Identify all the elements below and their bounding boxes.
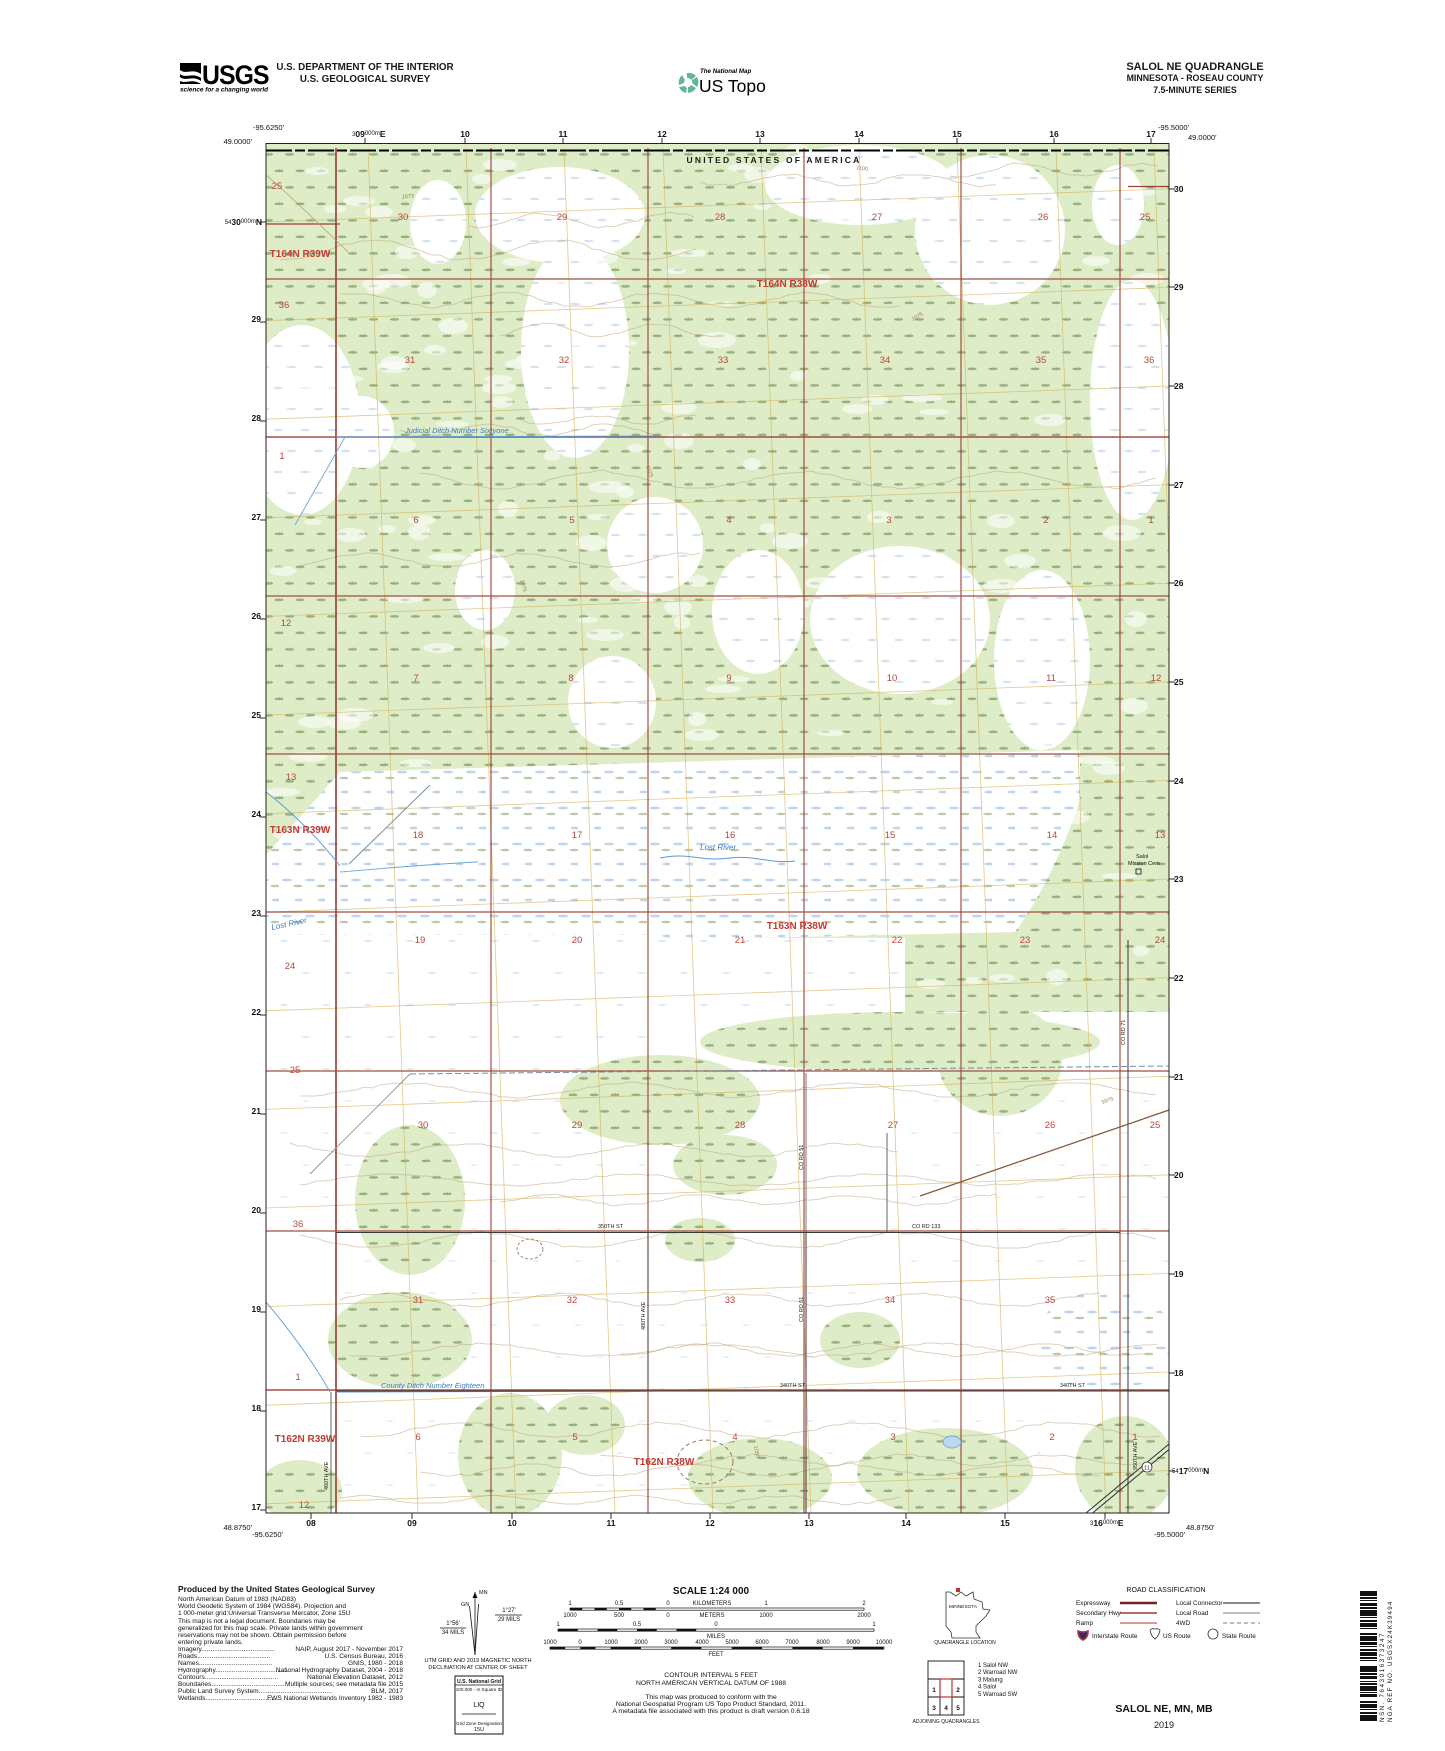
svg-text:350TH ST: 350TH ST	[598, 1224, 624, 1230]
svg-text:10: 10	[887, 673, 898, 684]
svg-text:NSN. 7643016373247: NSN. 7643016373247	[1379, 1632, 1386, 1722]
svg-text:28: 28	[252, 413, 262, 423]
svg-text:3 Malung: 3 Malung	[978, 1677, 1003, 1683]
svg-text:4 Salol: 4 Salol	[978, 1685, 996, 1691]
svg-text:48.8750': 48.8750'	[1186, 1523, 1215, 1532]
svg-text:U.S. Census Bureau, 2016: U.S. Census Bureau, 2016	[325, 1653, 404, 1660]
svg-text:1: 1	[279, 451, 284, 462]
svg-text:1000: 1000	[563, 1613, 577, 1619]
svg-text:The National Map: The National Map	[700, 68, 751, 75]
svg-text:FEET: FEET	[708, 1652, 724, 1658]
svg-text:3: 3	[886, 515, 891, 526]
svg-text:T162N R39W: T162N R39W	[275, 1434, 336, 1445]
svg-text:US Topo: US Topo	[699, 76, 766, 96]
svg-text:17: 17	[1146, 129, 1156, 139]
svg-text:Boundaries....................: Boundaries..............................…	[178, 1681, 285, 1688]
svg-text:FWS National Wetlands Inventor: FWS National Wetlands Inventory 1982 - 1…	[267, 1695, 403, 1702]
svg-text:18: 18	[413, 830, 424, 841]
svg-text:17: 17	[252, 1502, 262, 1512]
svg-text:34: 34	[880, 355, 891, 366]
svg-text:13: 13	[804, 1518, 814, 1528]
svg-text:36: 36	[279, 300, 290, 311]
svg-text:A metadata file associated wit: A metadata file associated with this pro…	[612, 1708, 809, 1715]
svg-text:-95.6250': -95.6250'	[252, 1530, 284, 1539]
svg-text:2000: 2000	[634, 1640, 648, 1646]
svg-text:2: 2	[956, 1687, 960, 1694]
svg-text:7: 7	[413, 673, 418, 684]
svg-text:1000: 1000	[759, 1613, 773, 1619]
svg-text:35: 35	[1036, 355, 1047, 366]
svg-text:11: 11	[559, 129, 568, 139]
svg-text:35: 35	[1045, 1295, 1056, 1306]
svg-text:1: 1	[1148, 515, 1153, 526]
svg-text:11: 11	[1046, 673, 1056, 684]
svg-text:5 Warroad SW: 5 Warroad SW	[978, 1692, 1017, 1698]
svg-text:1000: 1000	[604, 1640, 618, 1646]
svg-text:15: 15	[1000, 1518, 1010, 1528]
svg-text:12: 12	[705, 1518, 715, 1528]
svg-text:2 Warroad NW: 2 Warroad NW	[978, 1670, 1018, 1676]
svg-text:19: 19	[1174, 1269, 1184, 1279]
svg-text:4: 4	[944, 1705, 948, 1712]
svg-text:500: 500	[614, 1613, 625, 1619]
svg-text:26: 26	[1174, 578, 1184, 588]
svg-text:LIQ: LIQ	[473, 1702, 485, 1709]
svg-text:Contours......................: Contours................................…	[178, 1674, 278, 1681]
svg-text:29: 29	[252, 314, 262, 324]
svg-text:UNITED STATES OF AMERICA: UNITED STATES OF AMERICA	[687, 155, 862, 165]
svg-text:14: 14	[1047, 830, 1058, 841]
svg-text:reservations may not be shown.: reservations may not be shown. Obtain pe…	[178, 1632, 347, 1639]
svg-text:GNIS, 1980 - 2018: GNIS, 1980 - 2018	[348, 1660, 403, 1667]
svg-text:25: 25	[252, 710, 262, 720]
svg-text:340TH ST: 340TH ST	[780, 1383, 806, 1389]
svg-text:30: 30	[1174, 184, 1184, 194]
svg-text:This map is not a legal docume: This map is not a legal document. Bounda…	[178, 1618, 336, 1625]
svg-text:18: 18	[252, 1403, 262, 1413]
svg-text:24: 24	[252, 809, 262, 819]
svg-text:12: 12	[299, 1500, 310, 1511]
svg-text:Imagery.......................: Imagery.................................…	[178, 1646, 275, 1653]
svg-text:CO RD 51: CO RD 51	[799, 1297, 805, 1322]
svg-text:MN: MN	[479, 1590, 488, 1596]
svg-text:11: 11	[607, 1518, 616, 1528]
svg-text:1073: 1073	[402, 193, 415, 200]
svg-text:ROAD CLASSIFICATION: ROAD CLASSIFICATION	[1126, 1587, 1205, 1594]
svg-text:3: 3	[932, 1705, 936, 1712]
svg-text:10: 10	[507, 1518, 517, 1528]
svg-text:21: 21	[252, 1106, 262, 1116]
svg-text:32: 32	[567, 1295, 578, 1306]
svg-text:9: 9	[726, 673, 731, 684]
svg-text:13: 13	[286, 772, 297, 783]
svg-text:Produced by the United States: Produced by the United States Geological…	[178, 1584, 375, 1594]
svg-text:24: 24	[1155, 935, 1166, 946]
svg-text:2: 2	[1043, 515, 1048, 526]
svg-text:26: 26	[1038, 212, 1049, 223]
svg-text:Wetlands......................: Wetlands................................…	[178, 1695, 279, 1702]
svg-text:10000: 10000	[876, 1640, 893, 1646]
svg-text:SALOL NE QUADRANGLE: SALOL NE QUADRANGLE	[1126, 61, 1263, 73]
svg-text:Salol: Salol	[1136, 854, 1148, 860]
svg-text:20: 20	[572, 935, 583, 946]
svg-text:17: 17	[572, 830, 583, 841]
svg-text:32: 32	[559, 355, 570, 366]
svg-text:6: 6	[415, 1432, 420, 1443]
svg-text:Mission Cem: Mission Cem	[1128, 861, 1160, 867]
svg-text:22: 22	[892, 935, 903, 946]
svg-text:48.8750': 48.8750'	[223, 1523, 252, 1532]
svg-text:National Geospatial Program US: National Geospatial Program US Topo Prod…	[616, 1701, 806, 1708]
svg-text:49.0000': 49.0000'	[1188, 133, 1217, 142]
svg-text:-95.5000': -95.5000'	[1154, 1530, 1186, 1539]
svg-text:-95.6250': -95.6250'	[253, 123, 285, 132]
svg-text:Grid Zone Designation: Grid Zone Designation	[456, 1721, 502, 1726]
svg-text:18: 18	[1174, 1368, 1184, 1378]
svg-text:15: 15	[952, 129, 962, 139]
svg-text:10: 10	[460, 129, 470, 139]
svg-text:4: 4	[726, 515, 731, 526]
svg-text:25: 25	[1174, 677, 1184, 687]
svg-text:25: 25	[1140, 212, 1151, 223]
svg-text:U.S. GEOLOGICAL SURVEY: U.S. GEOLOGICAL SURVEY	[300, 74, 431, 85]
svg-text:North American Datum of 1983 (: North American Datum of 1983 (NAD83)	[178, 1596, 296, 1603]
svg-text:2: 2	[1049, 1432, 1054, 1443]
svg-text:Interstate Route: Interstate Route	[1092, 1633, 1138, 1640]
svg-text:25: 25	[290, 1065, 301, 1076]
svg-text:1°27': 1°27'	[502, 1608, 516, 1614]
svg-text:08: 08	[306, 1518, 316, 1528]
svg-text:5: 5	[569, 515, 574, 526]
svg-text:20: 20	[1174, 1170, 1184, 1180]
svg-text:CO RD 71: CO RD 71	[1121, 1020, 1127, 1045]
svg-text:20: 20	[252, 1205, 262, 1215]
svg-text:Public Land Survey System.....: Public Land Survey System...............…	[178, 1688, 332, 1695]
svg-text:0.5: 0.5	[615, 1601, 624, 1607]
svg-text:SCALE 1:24 000: SCALE 1:24 000	[673, 1586, 750, 1597]
svg-text:29: 29	[1174, 282, 1184, 292]
svg-text:1: 1	[295, 1372, 300, 1383]
svg-text:12: 12	[281, 618, 292, 629]
svg-text:13: 13	[1155, 830, 1166, 841]
svg-text:460TH AVE: 460TH AVE	[324, 1461, 330, 1490]
svg-text:19: 19	[415, 935, 426, 946]
svg-text:DECLINATION AT CENTER OF SHEET: DECLINATION AT CENTER OF SHEET	[428, 1665, 528, 1671]
svg-text:1: 1	[1132, 1432, 1137, 1443]
svg-text:1: 1	[932, 1687, 936, 1694]
svg-text:21: 21	[1174, 1072, 1184, 1082]
svg-text:480TH AVE: 480TH AVE	[641, 1301, 647, 1330]
svg-text:-95.5000': -95.5000'	[1158, 123, 1190, 132]
svg-text:29: 29	[557, 212, 568, 223]
svg-text:28: 28	[735, 1120, 746, 1131]
svg-text:2000: 2000	[857, 1613, 871, 1619]
svg-text:27: 27	[1174, 480, 1184, 490]
svg-text:25: 25	[1150, 1120, 1161, 1131]
svg-text:27: 27	[888, 1120, 899, 1131]
svg-text:26: 26	[252, 611, 262, 621]
svg-text:22: 22	[252, 1007, 262, 1017]
svg-text:Ramp: Ramp	[1076, 1620, 1093, 1627]
svg-text:09: 09	[407, 1518, 417, 1528]
svg-text:33: 33	[725, 1295, 736, 1306]
svg-text:T162N R38W: T162N R38W	[634, 1457, 695, 1468]
svg-text:National Hydrography Dataset,: National Hydrography Dataset, 2004 - 201…	[276, 1667, 404, 1674]
svg-text:SALOL NE, MN, MB: SALOL NE, MN, MB	[1115, 1703, 1213, 1715]
svg-text:3000: 3000	[664, 1640, 678, 1646]
svg-text:U.S. DEPARTMENT OF THE INTERIO: U.S. DEPARTMENT OF THE INTERIOR	[276, 62, 453, 73]
svg-text:100,000 - m Square ID: 100,000 - m Square ID	[456, 1687, 503, 1692]
svg-text:4WD: 4WD	[1176, 1620, 1191, 1627]
svg-text:UTM GRID AND 2019 MAGNETIC NOR: UTM GRID AND 2019 MAGNETIC NORTH	[424, 1658, 531, 1664]
svg-text:ADJOINING QUADRANGLES: ADJOINING QUADRANGLES	[913, 1719, 981, 1725]
svg-text:1 Salol NW: 1 Salol NW	[978, 1663, 1008, 1669]
svg-text:31: 31	[413, 1295, 424, 1306]
svg-text:19: 19	[252, 1304, 262, 1314]
svg-text:T163N R39W: T163N R39W	[270, 825, 331, 836]
svg-text:8: 8	[568, 673, 573, 684]
svg-text:15: 15	[885, 830, 896, 841]
svg-text:CO RD 51: CO RD 51	[799, 1145, 805, 1170]
svg-text:9000: 9000	[846, 1640, 860, 1646]
svg-text:16: 16	[1049, 129, 1059, 139]
svg-text:12: 12	[1151, 673, 1162, 684]
svg-text:8000: 8000	[816, 1640, 830, 1646]
svg-text:36: 36	[293, 1219, 304, 1230]
svg-text:30: 30	[418, 1120, 429, 1131]
svg-text:METERS: METERS	[699, 1613, 724, 1619]
svg-text:5: 5	[572, 1432, 577, 1443]
svg-text:Local Connector: Local Connector	[1176, 1600, 1223, 1607]
svg-text:28: 28	[1174, 381, 1184, 391]
svg-text:14: 14	[901, 1518, 911, 1528]
svg-text:T164N R38W: T164N R38W	[757, 279, 818, 290]
svg-text:22: 22	[1174, 973, 1184, 983]
svg-text:24: 24	[1174, 776, 1184, 786]
svg-text:21: 21	[735, 935, 746, 946]
svg-text:950TH AVE: 950TH AVE	[1133, 1441, 1139, 1470]
svg-text:11: 11	[1144, 1466, 1150, 1472]
svg-text:KILOMETERS: KILOMETERS	[693, 1601, 732, 1607]
svg-text:Expressway: Expressway	[1076, 1600, 1111, 1607]
svg-text:MINNESOTA: MINNESOTA	[949, 1604, 978, 1610]
svg-text:Lost River: Lost River	[700, 843, 736, 852]
svg-text:T163N R38W: T163N R38W	[767, 921, 828, 932]
svg-text:0.5: 0.5	[633, 1622, 642, 1628]
svg-text:1000: 1000	[543, 1640, 557, 1646]
svg-text:science for a changing world: science for a changing world	[180, 87, 269, 94]
svg-text:Hydrography...................: Hydrography.............................…	[178, 1667, 289, 1674]
svg-text:28: 28	[715, 212, 726, 223]
svg-text:County Ditch Number Eighteen: County Ditch Number Eighteen	[381, 1381, 484, 1390]
svg-text:6000: 6000	[755, 1640, 769, 1646]
svg-text:13: 13	[755, 129, 765, 139]
svg-text:CO RD 133: CO RD 133	[912, 1224, 940, 1230]
svg-text:4000: 4000	[695, 1640, 709, 1646]
svg-text:Judicial Ditch Number Sixtyone: Judicial Ditch Number Sixtyone	[404, 426, 509, 435]
svg-text:27: 27	[872, 212, 883, 223]
svg-text:6: 6	[413, 515, 418, 526]
svg-text:Secondary Hwy: Secondary Hwy	[1076, 1610, 1122, 1617]
svg-text:NAIP, August 2017 - November 2: NAIP, August 2017 - November 2017	[295, 1646, 403, 1653]
svg-text:State Route: State Route	[1222, 1633, 1256, 1640]
svg-text:29 MILS: 29 MILS	[498, 1617, 520, 1623]
svg-text:7000: 7000	[785, 1640, 799, 1646]
svg-text:1 000-meter grid:Universal Tra: 1 000-meter grid:Universal Transverse Me…	[178, 1610, 350, 1617]
svg-text:29: 29	[572, 1120, 583, 1131]
svg-text:49.0000': 49.0000'	[223, 137, 252, 146]
svg-text:GN: GN	[461, 1602, 469, 1608]
svg-text:34 MILS: 34 MILS	[442, 1630, 464, 1636]
svg-text:1°56': 1°56'	[446, 1621, 460, 1627]
svg-text:23: 23	[252, 908, 262, 918]
svg-text:5000: 5000	[725, 1640, 739, 1646]
svg-text:31: 31	[405, 355, 416, 366]
svg-text:23: 23	[1020, 935, 1031, 946]
svg-text:25: 25	[272, 181, 283, 192]
svg-text:7.5-MINUTE SERIES: 7.5-MINUTE SERIES	[1153, 85, 1237, 95]
svg-text:23: 23	[1174, 874, 1184, 884]
svg-text:This map was produced to confo: This map was produced to conform with th…	[645, 1694, 777, 1701]
svg-text:34: 34	[885, 1295, 896, 1306]
svg-text:14: 14	[854, 129, 864, 139]
svg-text:NGA REF NO. USGSX24K39494: NGA REF NO. USGSX24K39494	[1387, 1601, 1394, 1722]
svg-text:BLM, 2017: BLM, 2017	[371, 1688, 403, 1695]
svg-text:MINNESOTA - ROSEAU COUNTY: MINNESOTA - ROSEAU COUNTY	[1127, 73, 1264, 83]
svg-text:30: 30	[398, 212, 409, 223]
svg-text:Names.........................: Names...................................…	[178, 1660, 272, 1667]
svg-text:Roads.........................: Roads...................................…	[178, 1653, 271, 1660]
svg-text:entering private lands.: entering private lands.	[178, 1639, 243, 1646]
svg-text:Multiple sources; see metadata: Multiple sources; see metadata file 2015	[285, 1681, 403, 1688]
svg-text:Local Road: Local Road	[1176, 1610, 1209, 1617]
svg-text:generalized for this map scale: generalized for this map scale. Private …	[178, 1625, 363, 1632]
svg-text:12: 12	[657, 129, 667, 139]
svg-text:26: 26	[1045, 1120, 1056, 1131]
svg-text:340TH ST: 340TH ST	[1060, 1383, 1086, 1389]
svg-text:World Geodetic System of 1984: World Geodetic System of 1984 (WGS84). P…	[178, 1603, 346, 1610]
svg-text:National Elevation Dataset, 20: National Elevation Dataset, 2012	[307, 1674, 403, 1681]
svg-text:36: 36	[1144, 355, 1155, 366]
svg-text:T164N R39W: T164N R39W	[270, 249, 331, 260]
svg-text:U.S. National Grid: U.S. National Grid	[457, 1679, 501, 1685]
svg-text:CONTOUR INTERVAL 5 FEET: CONTOUR INTERVAL 5 FEET	[664, 1672, 757, 1679]
svg-text:24: 24	[285, 961, 296, 972]
svg-text:NORTH AMERICAN VERTICAL DATUM: NORTH AMERICAN VERTICAL DATUM OF 1988	[636, 1680, 786, 1687]
svg-text:4: 4	[732, 1432, 737, 1443]
svg-text:5: 5	[956, 1705, 960, 1712]
svg-text:16: 16	[725, 830, 736, 841]
svg-text:QUADRANGLE LOCATION: QUADRANGLE LOCATION	[934, 1640, 996, 1646]
svg-text:2019: 2019	[1154, 1720, 1174, 1730]
svg-text:US Route: US Route	[1163, 1633, 1191, 1640]
svg-text:33: 33	[718, 355, 729, 366]
svg-text:27: 27	[252, 512, 262, 522]
svg-text:3: 3	[890, 1432, 895, 1443]
svg-text:15U: 15U	[474, 1727, 484, 1733]
svg-text:MILES: MILES	[707, 1634, 725, 1640]
